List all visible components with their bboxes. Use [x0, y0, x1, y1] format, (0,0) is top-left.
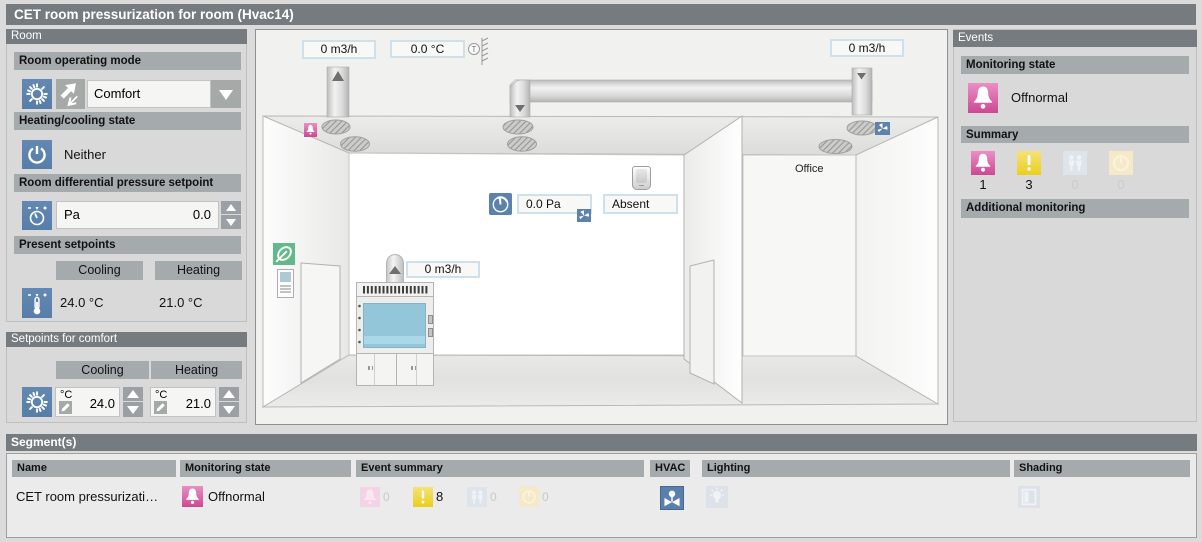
svg-text:T: T — [472, 45, 477, 54]
svg-text:Office: Office — [795, 163, 824, 175]
